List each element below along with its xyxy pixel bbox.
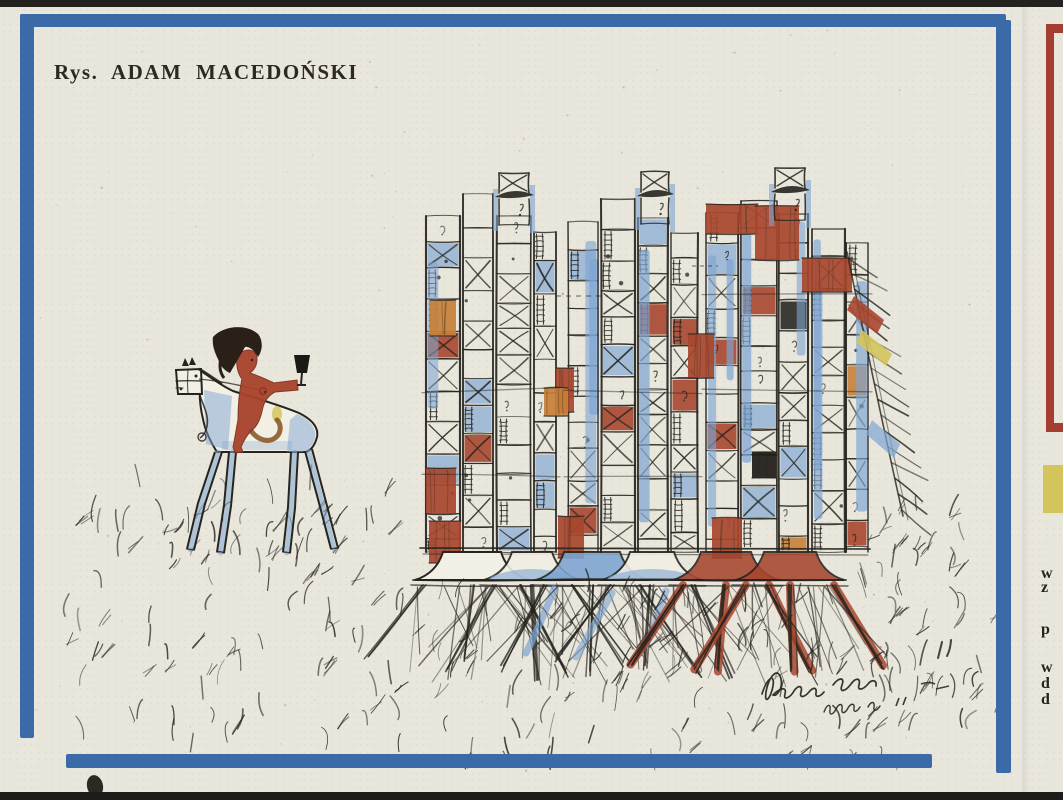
- edge-letter: d: [1041, 692, 1050, 708]
- scanned-page: Rys. ADAM MACEDOŃSKI w z p w d d: [0, 0, 1063, 800]
- adjacent-page-red-frame-top: [1046, 24, 1063, 33]
- adjacent-page-red-frame: [1046, 26, 1054, 430]
- scan-edge-bottom: [0, 792, 1063, 800]
- edge-letter: d: [1041, 676, 1050, 692]
- blue-frame-right: [996, 20, 1011, 773]
- caption-artist-credit: Rys. ADAM MACEDOŃSKI: [54, 60, 358, 85]
- scan-edge-top: [0, 0, 1063, 7]
- blue-frame-left: [20, 14, 34, 738]
- tower-stilt-bases: [364, 552, 887, 690]
- adjacent-page-yellow-block: [1043, 465, 1063, 513]
- tower-blocks: [420, 168, 872, 563]
- horse-and-rider: [176, 327, 338, 553]
- edge-letter: z: [1041, 580, 1048, 596]
- page-gutter-shadow: [1022, 0, 1030, 800]
- blue-frame-bottom: [66, 754, 932, 768]
- cartoon-illustration: [0, 0, 1063, 800]
- edge-letter: p: [1041, 622, 1050, 638]
- paper-speckles: [35, 29, 998, 771]
- blue-frame-top: [20, 14, 1006, 27]
- edge-letter: w: [1041, 660, 1053, 676]
- adjacent-page-red-frame-bottom: [1046, 423, 1063, 432]
